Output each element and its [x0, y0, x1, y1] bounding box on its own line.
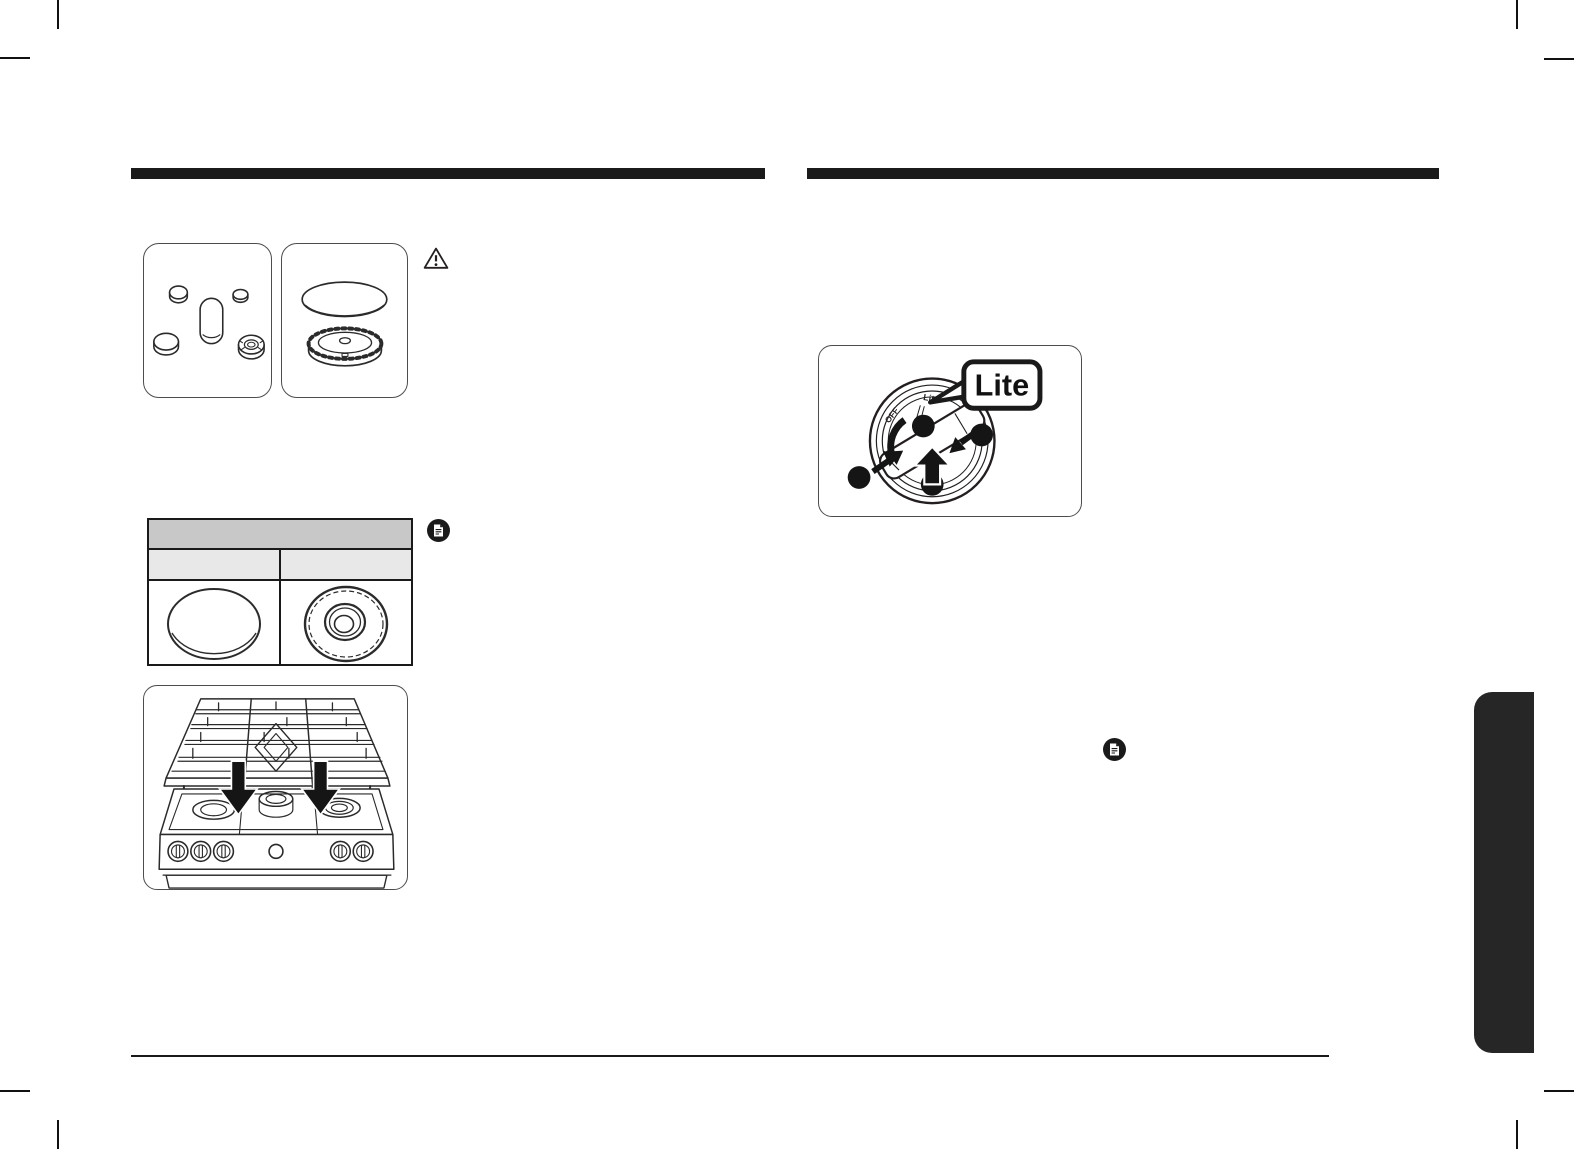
cap-table-subheader-row: [149, 550, 411, 581]
crop-mark: [1544, 1090, 1574, 1092]
burner-parts-figure: [144, 244, 271, 397]
crop-mark: [1544, 58, 1574, 60]
chapter-side-tab: [1474, 692, 1534, 1053]
knob-lite-figure: OFF Lite: [819, 346, 1081, 516]
crop-mark: [0, 57, 30, 59]
bubble-label: Lite: [975, 368, 1029, 402]
crop-mark: [1516, 1120, 1518, 1149]
burner-cap-head-figure: [282, 244, 407, 397]
burner-cap-top-image: [298, 583, 394, 665]
crop-mark: [1516, 0, 1518, 29]
crop-mark: [57, 1120, 59, 1149]
crop-mark: [57, 0, 59, 29]
cooktop-grates-figure: [144, 686, 407, 889]
cap-table-cell-side-view: [149, 581, 281, 666]
manual-page: OFF Lite: [0, 0, 1574, 1149]
cooktop-grates-panel: [143, 685, 408, 890]
section-heading-bar-left: [131, 168, 765, 179]
burner-cap-table: [147, 518, 413, 666]
warning-icon: [423, 246, 449, 271]
note-icon: [427, 519, 450, 542]
burner-cap-head-panel: [281, 243, 408, 398]
callout-dot: [912, 415, 935, 438]
section-heading-bar-right: [807, 168, 1439, 179]
burner-parts-panel: [143, 243, 272, 398]
cap-table-header-row: [149, 520, 411, 550]
callout-dot: [848, 466, 871, 489]
crop-mark: [0, 1090, 30, 1092]
knob-lite-panel: OFF Lite: [818, 345, 1082, 517]
cap-table-subheader-cell: [149, 550, 281, 579]
cap-table-cell-top-view: [281, 581, 411, 666]
burner-cap-side-image: [159, 584, 269, 664]
note-icon: [1103, 738, 1126, 761]
cap-table-subheader-cell: [281, 550, 411, 579]
footer-rule: [131, 1055, 1329, 1057]
